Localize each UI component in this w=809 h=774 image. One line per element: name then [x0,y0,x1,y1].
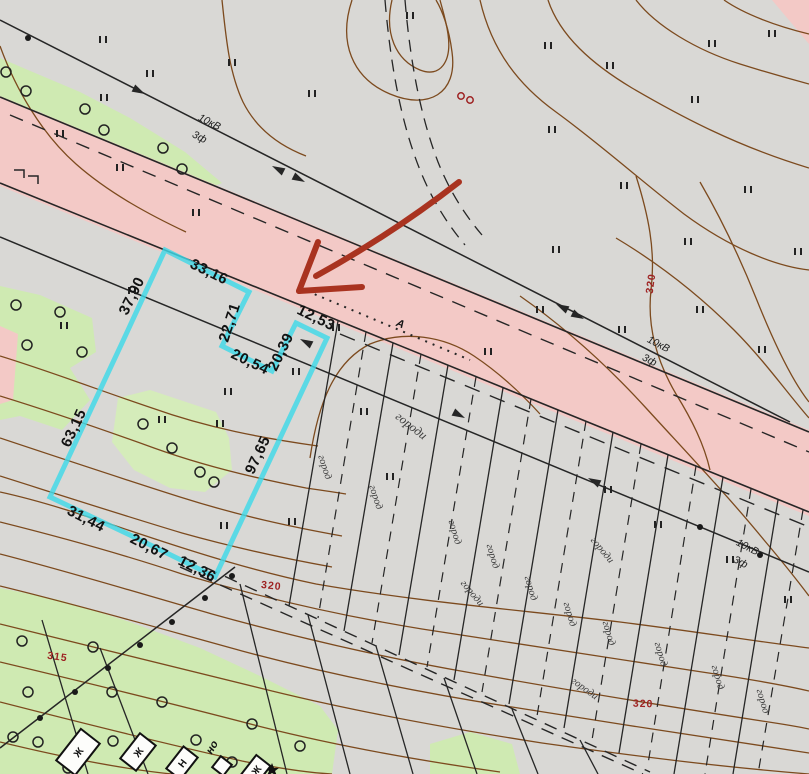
pole-dot [169,619,175,625]
pole-dot [25,35,31,41]
pole-dot [202,595,208,601]
map-canvas: ЖЖНЖ 33,1637,9022,7120,5420,3912,5397,65… [0,0,809,774]
red-arrow-barb-right [299,287,362,291]
pole-dot [105,665,111,671]
pole-dot [37,715,43,721]
topographic-map: ЖЖНЖ 33,1637,9022,7120,5420,3912,5397,65… [0,0,809,774]
elevation-label: 320 [260,579,282,593]
elevation-label: 320 [633,698,654,711]
pole-dot [72,689,78,695]
pole-dot [137,642,143,648]
pole-dot [229,573,235,579]
pole-dot [697,524,703,530]
pole-dot [757,552,763,558]
